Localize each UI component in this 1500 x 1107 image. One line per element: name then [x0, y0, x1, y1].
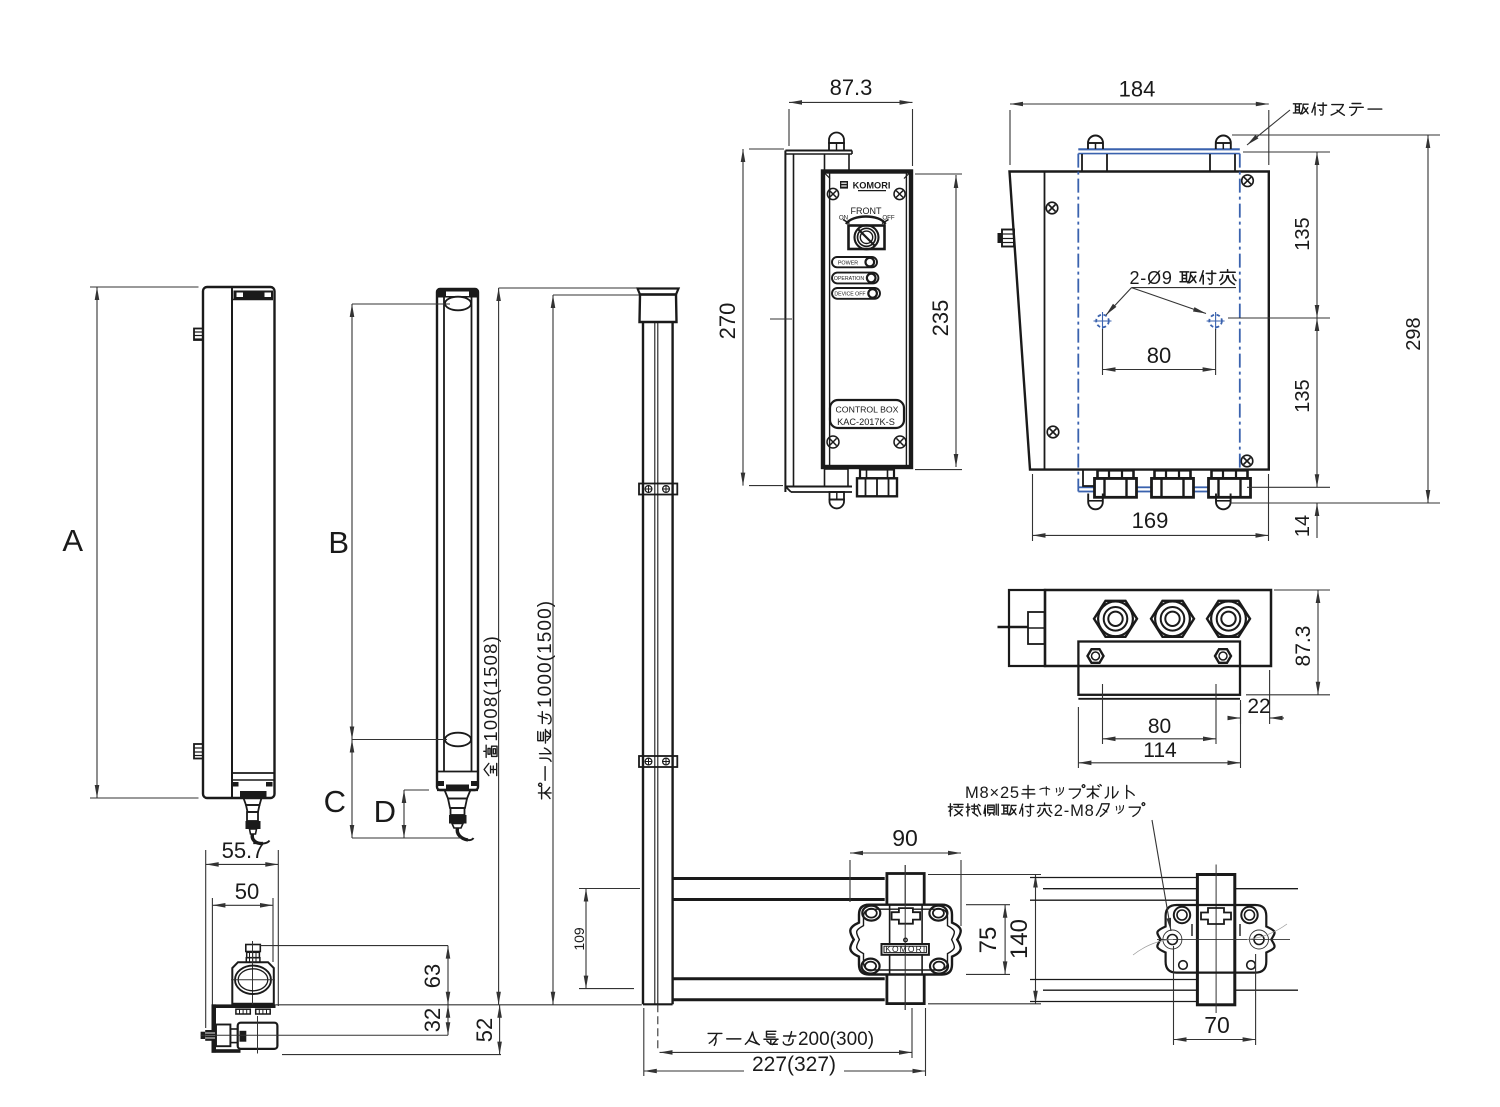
svg-text:227(327): 227(327): [752, 1053, 836, 1076]
svg-text:114: 114: [1143, 739, 1177, 762]
svg-text:90: 90: [892, 825, 918, 851]
svg-text:50: 50: [235, 879, 259, 904]
svg-text:14: 14: [1292, 515, 1314, 537]
svg-text:52: 52: [472, 1018, 497, 1042]
svg-text:140: 140: [1006, 919, 1033, 959]
svg-text:22: 22: [1247, 695, 1270, 718]
svg-text:109: 109: [571, 927, 587, 951]
svg-text:87.3: 87.3: [830, 75, 873, 100]
svg-text:70: 70: [1204, 1012, 1230, 1038]
svg-text:1008(1508): 1008(1508): [480, 635, 501, 742]
svg-text:KAC-2017K-S: KAC-2017K-S: [837, 417, 895, 427]
svg-text:235: 235: [928, 300, 953, 337]
svg-text:KOMORI: KOMORI: [853, 181, 891, 191]
svg-text:2-M8: 2-M8: [1054, 802, 1095, 820]
svg-text:1000(1500): 1000(1500): [535, 600, 556, 708]
svg-text:32: 32: [420, 1008, 445, 1032]
svg-text:80: 80: [1148, 715, 1171, 738]
svg-text:D: D: [374, 794, 396, 829]
svg-text:200(300): 200(300): [798, 1029, 874, 1050]
svg-text:M8×25: M8×25: [965, 784, 1020, 802]
svg-text:FRONT: FRONT: [851, 206, 882, 216]
svg-text:2-Ø9: 2-Ø9: [1130, 268, 1173, 288]
svg-text:184: 184: [1119, 77, 1156, 102]
svg-text:OPERATION: OPERATION: [834, 276, 864, 282]
svg-text:80: 80: [1147, 343, 1171, 368]
svg-text:135: 135: [1292, 217, 1314, 250]
svg-text:270: 270: [715, 303, 740, 340]
svg-text:169: 169: [1132, 508, 1169, 533]
svg-text:POWER: POWER: [838, 260, 858, 266]
svg-text:87.3: 87.3: [1292, 626, 1315, 667]
svg-text:DEVICE OFF: DEVICE OFF: [834, 292, 865, 298]
svg-text:55.7: 55.7: [222, 838, 265, 863]
svg-text:A: A: [62, 523, 83, 558]
svg-text:63: 63: [420, 964, 445, 988]
svg-text:C: C: [324, 784, 346, 819]
svg-text:CONTROL BOX: CONTROL BOX: [836, 405, 899, 415]
svg-text:B: B: [328, 525, 349, 560]
svg-text:298: 298: [1403, 317, 1425, 350]
svg-text:OFF: OFF: [882, 215, 895, 222]
svg-text:135: 135: [1292, 379, 1314, 412]
svg-text:75: 75: [975, 927, 1002, 954]
